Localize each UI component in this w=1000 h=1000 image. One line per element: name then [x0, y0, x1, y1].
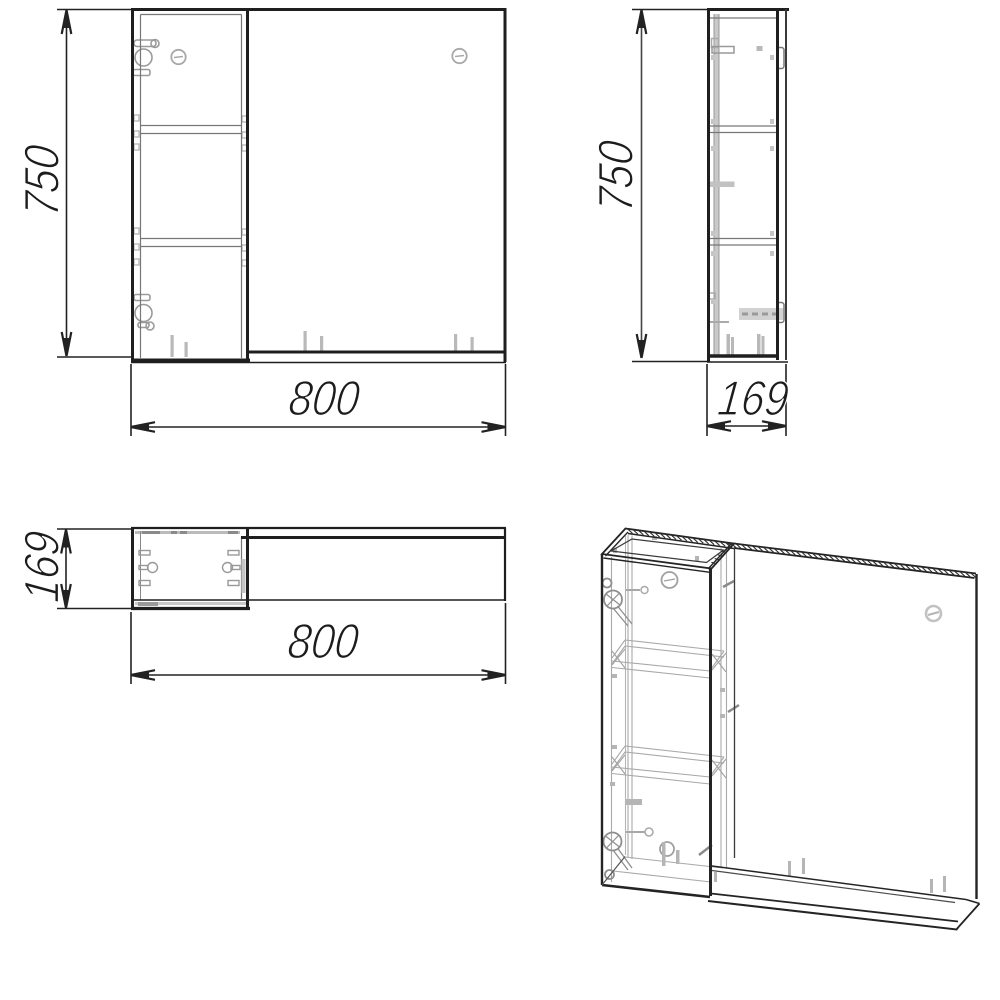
- svg-text:750: 750: [589, 138, 644, 214]
- svg-text:800: 800: [286, 371, 362, 426]
- svg-text:750: 750: [15, 142, 70, 218]
- svg-text:800: 800: [285, 614, 361, 669]
- svg-text:169: 169: [15, 528, 70, 604]
- svg-text:169: 169: [715, 371, 791, 426]
